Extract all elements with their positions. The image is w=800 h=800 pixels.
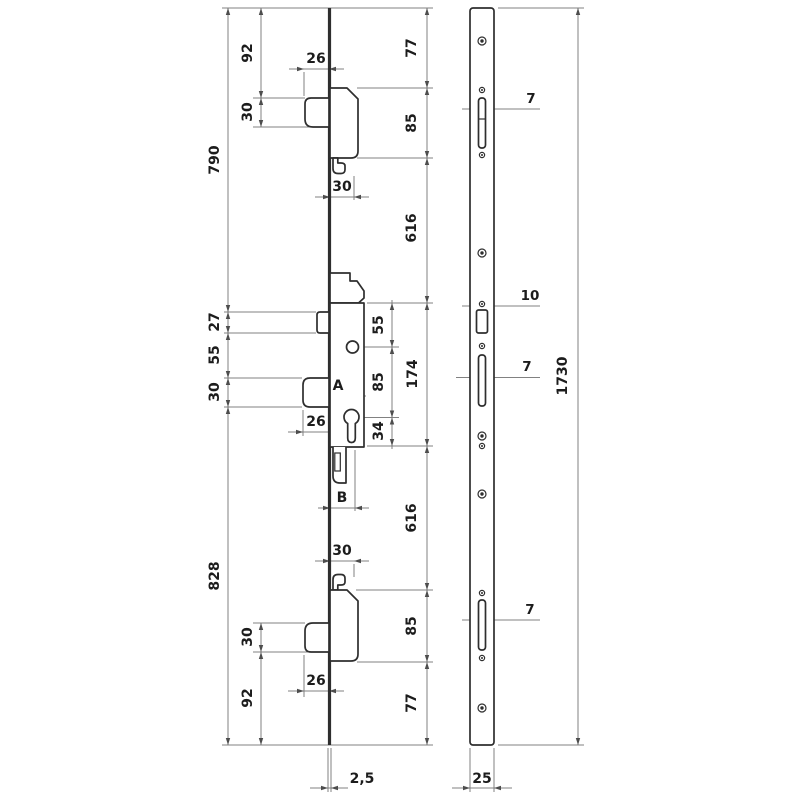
dim-616-lower: 616 [404, 503, 420, 532]
top-shoot-bolt [305, 98, 329, 127]
multipoint-lock-drawing: 790 27 55 30 828 92 30 30 92 55 85 34 17… [0, 0, 800, 800]
dim-26-mid: 26 [306, 414, 325, 430]
dim-2-5: 2,5 [350, 771, 375, 787]
faceplate-view [470, 8, 494, 745]
dim-85-top: 85 [404, 113, 420, 132]
dim-1730: 1730 [555, 356, 571, 395]
dim-7-bottom: 7 [525, 602, 534, 618]
dimension-labels: 790 27 55 30 828 92 30 30 92 55 85 34 17… [207, 38, 571, 787]
dim-828: 828 [207, 561, 223, 590]
bottom-hook-case [330, 590, 358, 661]
dim-85-mid: 85 [371, 372, 387, 391]
label-a: A [333, 378, 344, 394]
bottom-hook-bolt-tip [333, 575, 345, 591]
dim-174: 174 [405, 359, 421, 388]
lock-side-view [303, 8, 364, 745]
dim-34: 34 [371, 421, 387, 441]
dim-7-mid: 7 [522, 359, 531, 375]
dimension-arrows [226, 8, 580, 790]
dim-30-bottom: 30 [240, 627, 256, 647]
central-case-top-tab [330, 273, 364, 303]
dim-26-top: 26 [306, 51, 325, 67]
spindle-hole [347, 341, 359, 353]
dim-25: 25 [472, 771, 491, 787]
latch-slot [477, 310, 488, 333]
dim-92-bottom: 92 [240, 688, 256, 707]
bottom-shoot-bolt [305, 623, 329, 652]
label-b: B [337, 490, 348, 506]
dim-26-bottom: 26 [306, 673, 325, 689]
dim-790: 790 [207, 145, 223, 174]
dimension-lines [222, 8, 584, 792]
top-hook-bolt-tip [333, 158, 345, 174]
dim-616-upper: 616 [404, 213, 420, 242]
dim-92-top: 92 [240, 43, 256, 62]
cylinder-zone-slot [479, 355, 486, 406]
dim-30-hook-bottom: 30 [332, 543, 352, 559]
dim-7-top: 7 [526, 91, 535, 107]
dim-77-bottom: 77 [404, 693, 420, 712]
dim-27: 27 [207, 312, 223, 331]
technical-drawing-page: 790 27 55 30 828 92 30 30 92 55 85 34 17… [0, 0, 800, 800]
dim-85-bottom: 85 [404, 616, 420, 635]
deadbolt [303, 378, 329, 407]
dim-10: 10 [521, 288, 540, 304]
dim-77-top: 77 [404, 38, 420, 57]
top-hook-slot [479, 98, 486, 148]
bottom-hook-slot [479, 600, 486, 650]
dim-30-top: 30 [240, 102, 256, 122]
dim-30-hook-top: 30 [332, 179, 352, 195]
dim-55-right: 55 [371, 315, 387, 334]
top-hook-case [330, 88, 358, 158]
dim-55-left: 55 [207, 345, 223, 364]
dim-30-left: 30 [207, 382, 223, 402]
latch-bolt [317, 312, 329, 333]
